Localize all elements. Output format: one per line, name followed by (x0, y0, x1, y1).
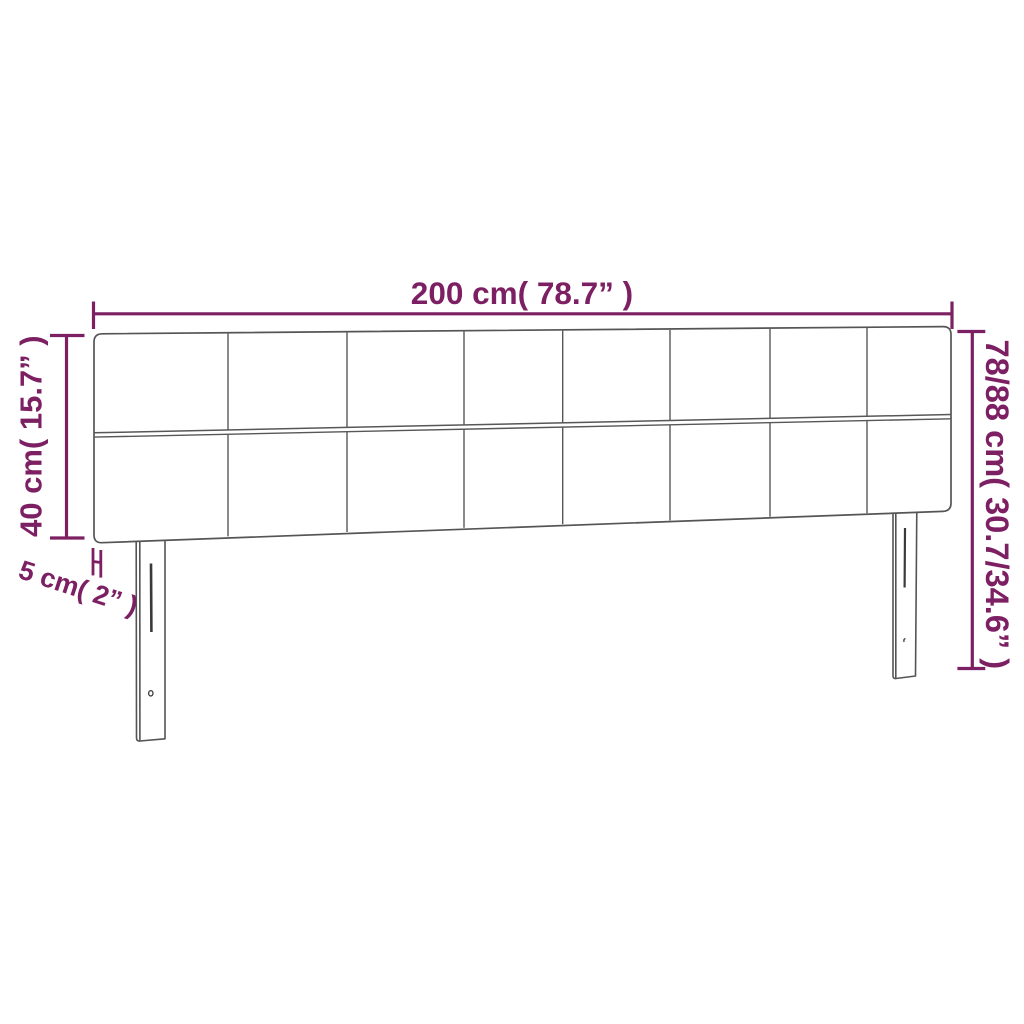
svg-text:5 cm( 2” ): 5 cm( 2” ) (15, 555, 141, 622)
svg-text:78/88 cm( 30.7/34.6” ): 78/88 cm( 30.7/34.6” ) (979, 340, 1016, 670)
svg-text:200 cm( 78.7” ): 200 cm( 78.7” ) (411, 275, 633, 311)
svg-text:40 cm( 15.7” ): 40 cm( 15.7” ) (14, 335, 49, 537)
